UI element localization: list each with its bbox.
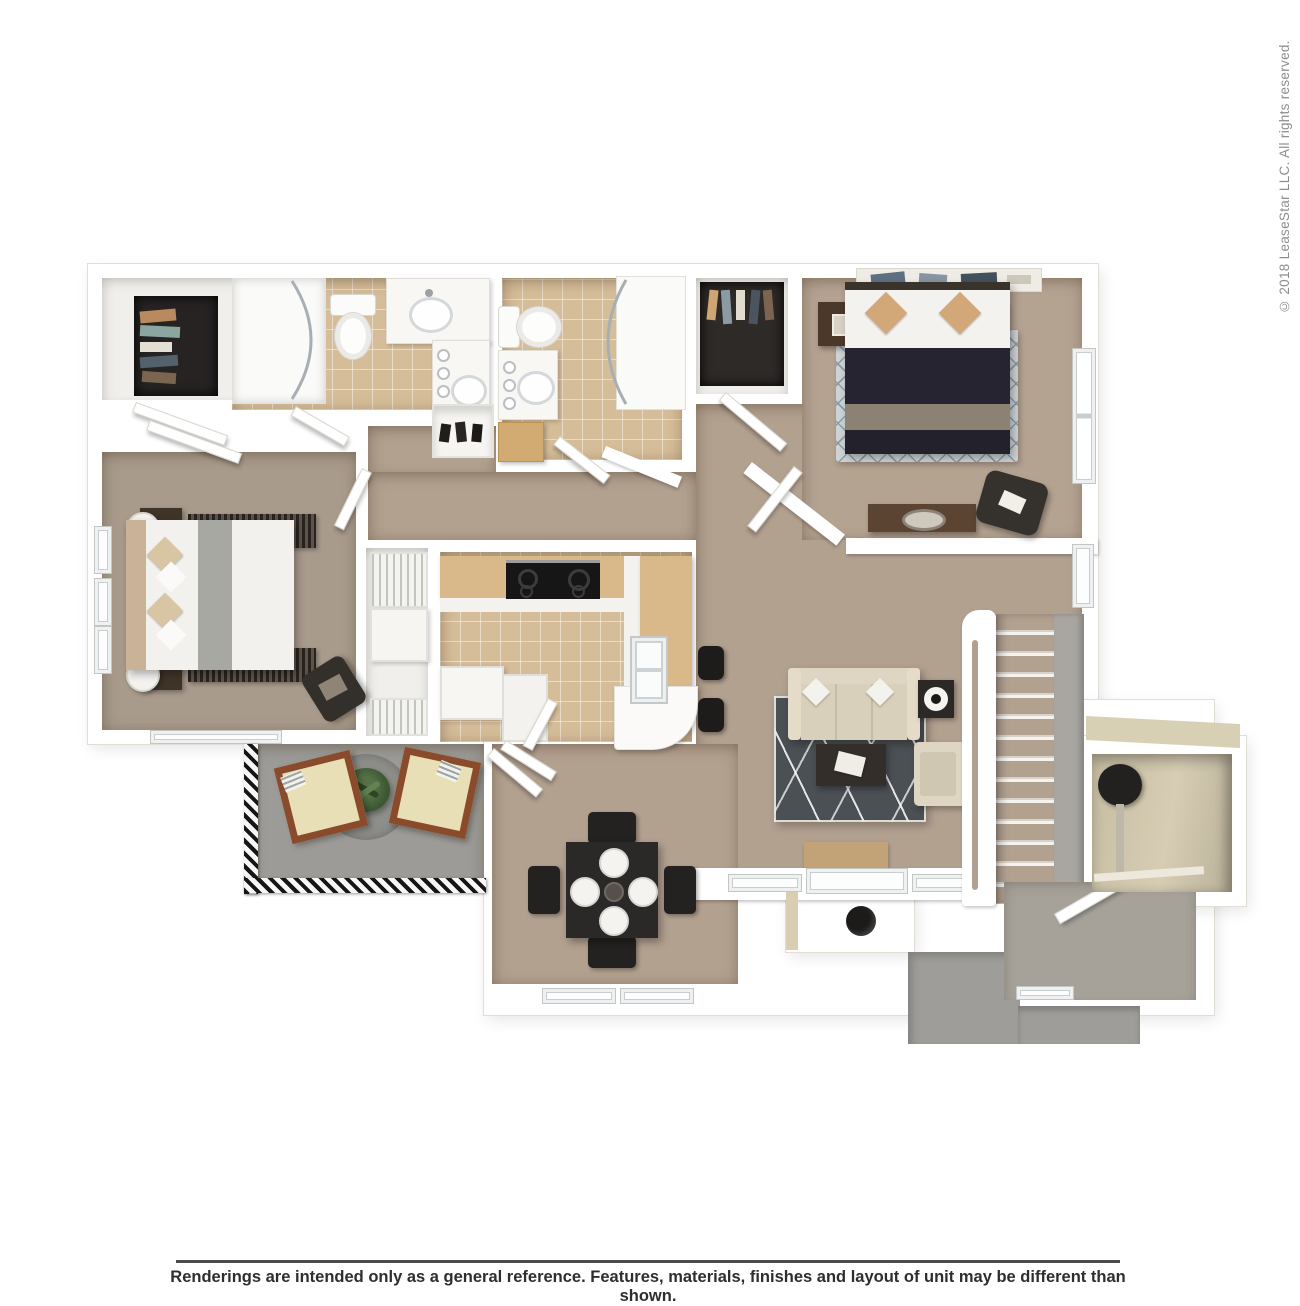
place-setting — [599, 848, 629, 878]
floor-plan-rendering — [0, 0, 1300, 1300]
floorplan-page: { "watermark": { "copyright": "© 2018 Le… — [0, 0, 1300, 1300]
patio-railing-bottom — [244, 878, 486, 893]
vanity-sink — [517, 371, 555, 405]
place-setting — [628, 877, 658, 907]
faucet-knob — [503, 379, 516, 392]
stair-railing — [962, 610, 996, 906]
dining-chair-left — [528, 866, 560, 914]
bed-sheet-top — [845, 290, 1010, 348]
wire-shelf-top — [370, 552, 428, 608]
vanity-sink — [409, 297, 453, 333]
wire-shelf-bottom — [370, 698, 428, 736]
stair-hall-window — [1072, 544, 1094, 608]
sofa-back — [788, 668, 920, 684]
living-window-left — [728, 874, 802, 892]
water-heater-pipe — [1116, 804, 1124, 874]
kitchen-fridge — [440, 666, 504, 720]
hall-vanity — [498, 350, 558, 420]
walkin-closet-interior — [134, 296, 218, 396]
chair-accent — [318, 674, 348, 701]
stove-burner — [572, 585, 585, 598]
hanging-clothes — [142, 371, 177, 384]
dining-chair-right — [664, 866, 696, 914]
paper-on-chair — [998, 490, 1026, 514]
bedroom2-dresser — [868, 504, 976, 532]
dining-table — [566, 842, 658, 938]
master-window-1 — [94, 526, 112, 574]
bedroom2-bottom-wall — [846, 538, 1098, 554]
sink-basin — [635, 641, 663, 670]
hanging-clothes — [749, 290, 761, 325]
bed-comforter — [845, 348, 1010, 404]
footer-divider — [176, 1260, 1120, 1263]
dining-chair-top — [588, 812, 636, 844]
shoes — [471, 424, 483, 443]
master-vanity-top — [386, 278, 490, 344]
staircase — [996, 614, 1054, 904]
living-patio-door — [806, 868, 908, 894]
bed-foot-band — [845, 430, 1010, 454]
hall-shower-glass — [596, 276, 640, 408]
faucet-knob — [437, 385, 450, 398]
hanging-clothes — [140, 325, 181, 338]
water-heater — [1098, 764, 1142, 806]
chair-pillow — [280, 770, 306, 793]
dining-chair-bottom — [588, 936, 636, 968]
bed-fold-blanket — [845, 404, 1010, 430]
toilet-bowl — [334, 312, 372, 360]
storage-baseboard — [1094, 866, 1204, 882]
media-console-mat — [804, 842, 888, 868]
bedroom2-bed — [845, 282, 1010, 454]
bar-stool-1 — [698, 646, 724, 680]
master-window-3 — [94, 626, 112, 674]
coffee-table — [816, 744, 886, 786]
patio-railing-left — [244, 744, 258, 894]
bed-headboard — [126, 520, 146, 670]
bed-headboard — [845, 282, 1010, 290]
sofa — [788, 668, 920, 740]
vanity-faucet — [425, 289, 433, 297]
vanity-sink-2 — [451, 375, 487, 407]
foyer-sidelight — [1016, 986, 1074, 1000]
bar-stool-2 — [698, 698, 724, 732]
faucet-knob — [437, 349, 450, 362]
place-setting — [599, 906, 629, 936]
dining-window-right — [620, 988, 694, 1004]
stove-burner — [520, 585, 533, 598]
table-centerpiece — [604, 882, 624, 902]
hanging-clothes — [736, 290, 745, 320]
dining-window-left — [542, 988, 616, 1004]
dresser-mirror — [902, 509, 946, 531]
faucet-knob — [503, 361, 516, 374]
porch-light — [846, 906, 876, 936]
master-window-bottom — [150, 730, 282, 744]
sink-basin — [635, 670, 663, 699]
place-setting — [570, 877, 600, 907]
hall-toilet — [498, 304, 562, 348]
storage-interior — [1092, 754, 1232, 892]
hanging-clothes — [140, 342, 172, 352]
bed-runner — [198, 520, 232, 670]
kitchen-sink — [630, 636, 668, 704]
chair-pillow — [436, 760, 462, 783]
patio-chair-2 — [389, 747, 482, 840]
hanging-clothes — [140, 355, 179, 369]
corridor-floor-b — [368, 472, 696, 540]
hall-bath-cabinet — [498, 422, 544, 462]
washer-dryer — [370, 608, 428, 662]
porch-side-wall — [786, 892, 798, 950]
stair-rail-slot — [972, 640, 978, 890]
master-window-2 — [94, 578, 112, 626]
armchair-seat — [920, 752, 956, 796]
master-shower-glass — [252, 278, 332, 402]
side-table — [918, 680, 954, 718]
master-bed — [126, 520, 294, 670]
faucet-knob — [503, 397, 516, 410]
linen-shoe-shelf — [432, 404, 494, 458]
copyright-watermark: © 2018 LeaseStar LLC. All rights reserve… — [1277, 14, 1292, 314]
walkway-concrete-step — [1018, 1006, 1140, 1044]
stair-side-wallface — [1054, 614, 1084, 904]
shelf-books — [1007, 275, 1031, 284]
hanging-clothes — [763, 290, 775, 321]
faucet-knob — [437, 367, 450, 380]
master-toilet — [330, 294, 374, 360]
bedroom2-closet-interior — [700, 282, 784, 386]
kitchen-stove — [506, 560, 600, 599]
sofa-arm-left — [788, 668, 801, 740]
hanging-clothes — [721, 290, 732, 325]
laptop-on-table — [834, 751, 866, 777]
toilet-bowl — [516, 306, 562, 348]
hanging-clothes — [706, 290, 718, 321]
table-lamp-center — [931, 694, 941, 704]
disclaimer-text: Renderings are intended only as a genera… — [156, 1268, 1140, 1306]
bedroom2-window — [1072, 348, 1096, 484]
shoes — [455, 422, 467, 443]
hanging-clothes — [140, 308, 177, 323]
shoes — [439, 423, 451, 442]
